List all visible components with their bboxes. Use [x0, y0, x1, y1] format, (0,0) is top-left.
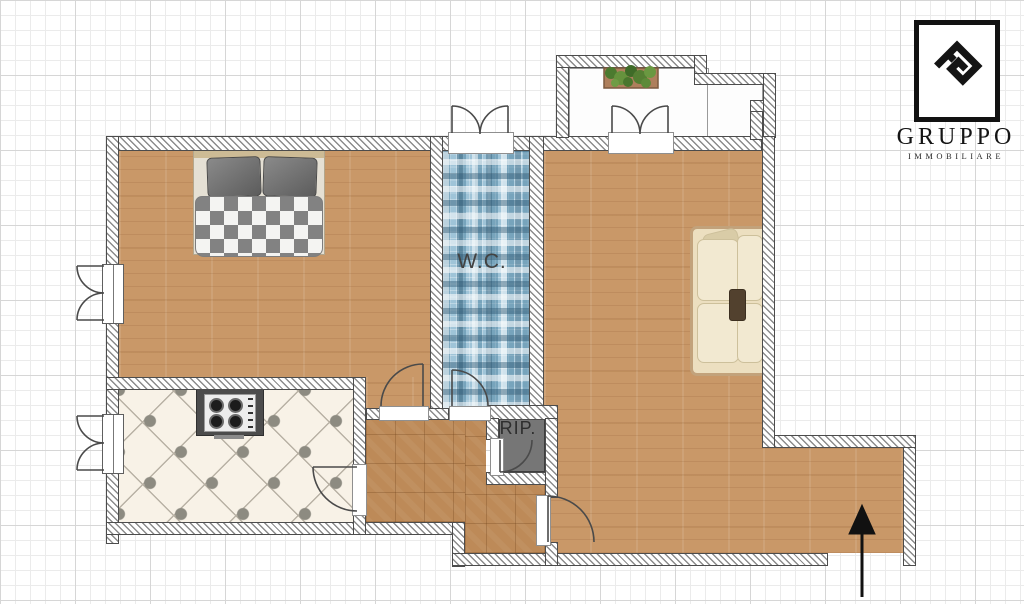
bed-pillow	[262, 156, 317, 198]
kitchen-window	[102, 414, 124, 474]
stove-burner	[228, 414, 243, 429]
wall-segment	[762, 435, 916, 448]
hall-floor	[366, 420, 465, 522]
wall-segment	[353, 377, 366, 466]
oven-handle	[214, 435, 244, 439]
balcony-door-threshold	[608, 132, 674, 154]
living-room-extension-floor	[763, 448, 903, 553]
bedroom-corridor-floor	[366, 377, 430, 409]
storage-door-threshold	[490, 438, 504, 476]
agency-logo-mark	[914, 20, 1000, 122]
bed-duvet	[195, 196, 323, 257]
hall-living-door-threshold	[536, 495, 551, 546]
floor-plan-canvas: W.C. RIP. GRUPPO IMMOBILIARE	[0, 0, 1024, 604]
stove	[204, 394, 256, 432]
wall-segment	[106, 522, 458, 535]
wall-segment	[668, 136, 762, 151]
agency-logo-subtitle: IMMOBILIARE	[896, 151, 1016, 161]
fg-monogram-icon	[924, 25, 990, 107]
wall-segment	[529, 136, 544, 420]
wall-segment	[106, 136, 450, 151]
stove-burner	[209, 398, 224, 413]
bedroom-door-threshold	[379, 406, 429, 421]
balcony-planter	[598, 60, 664, 94]
stove-knobs	[248, 398, 253, 428]
kitchen-counter	[196, 388, 264, 436]
storage-label: RIP.	[495, 418, 541, 439]
wc-door-threshold	[449, 406, 491, 421]
wall-segment	[106, 377, 366, 390]
wc-label: W.C.	[450, 250, 514, 274]
bedroom-window	[102, 264, 124, 324]
sofa	[690, 226, 772, 376]
kitchen-door-threshold	[352, 464, 367, 516]
stove-burner	[209, 414, 224, 429]
wall-segment	[762, 136, 775, 448]
hall-floor	[465, 420, 486, 553]
wc-floor	[443, 150, 529, 408]
stove-burner	[228, 398, 243, 413]
wall-segment	[452, 553, 828, 566]
wall-segment	[106, 136, 119, 267]
sofa-tray	[729, 289, 746, 321]
wall-segment	[510, 136, 612, 151]
wall-segment	[903, 435, 916, 566]
wall-segment	[430, 136, 443, 420]
wall-segment	[106, 321, 119, 417]
bed-pillow	[206, 156, 261, 198]
agency-logo-brand: GRUPPO	[896, 124, 1016, 151]
wall-segment	[763, 73, 776, 138]
wall-segment	[545, 418, 558, 498]
double-bed	[193, 148, 325, 255]
wc-exterior-door-threshold	[448, 132, 514, 154]
